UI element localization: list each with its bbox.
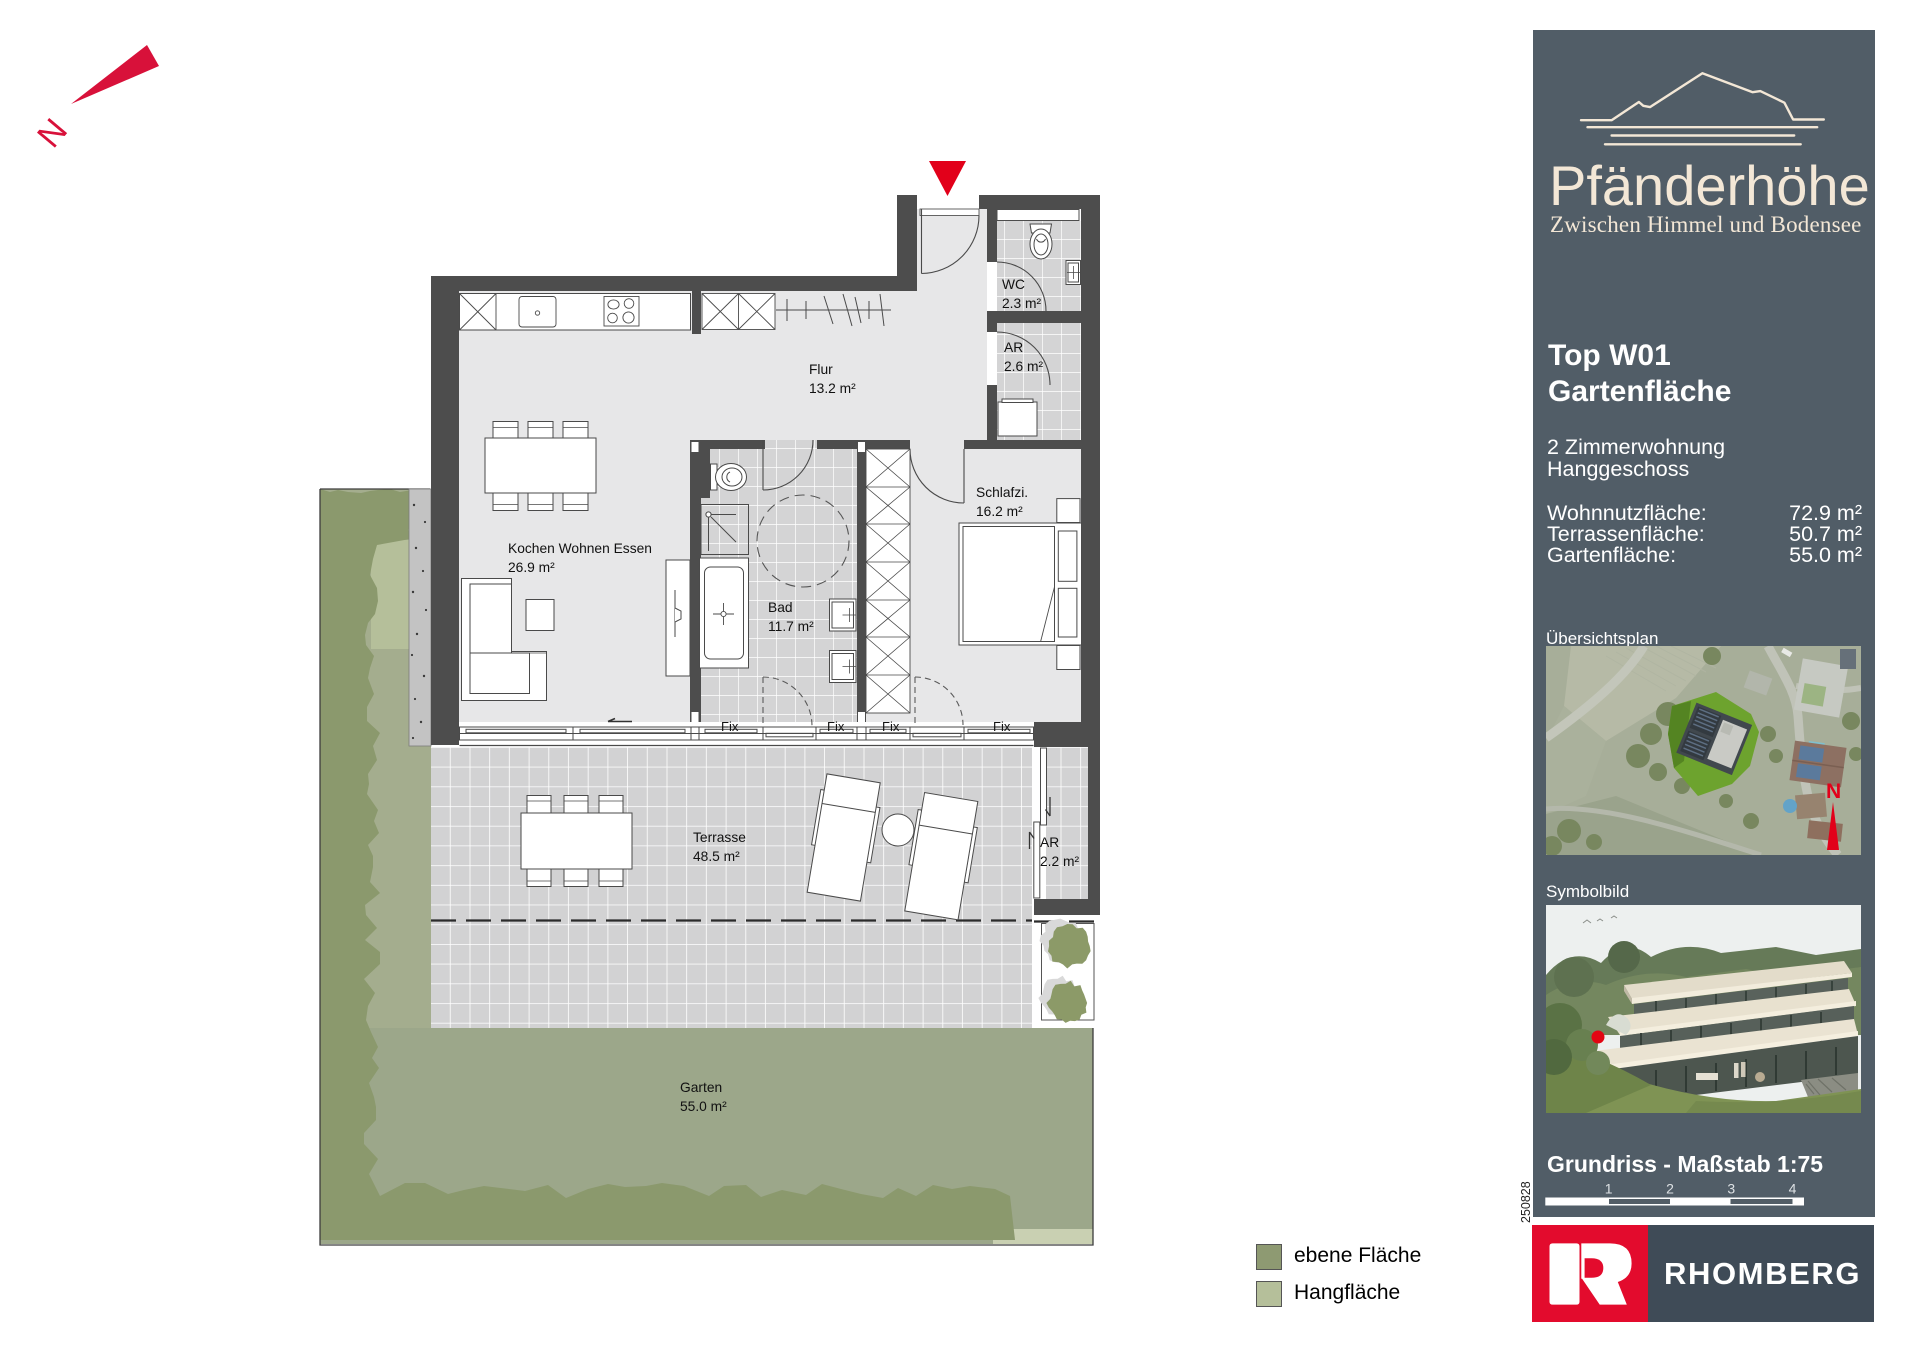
svg-text:AR: AR [1040, 835, 1059, 850]
svg-text:3: 3 [1727, 1181, 1735, 1197]
svg-text:1: 1 [1605, 1181, 1613, 1197]
svg-text:26.9 m²: 26.9 m² [508, 560, 555, 575]
svg-text:Fix: Fix [882, 719, 900, 734]
svg-text:2.3 m²: 2.3 m² [1002, 296, 1042, 311]
svg-text:48.5 m²: 48.5 m² [693, 849, 740, 864]
svg-text:2.2 m²: 2.2 m² [1040, 854, 1080, 869]
svg-text:Kochen Wohnen Essen: Kochen Wohnen Essen [508, 541, 652, 556]
svg-text:11.7 m²: 11.7 m² [768, 619, 814, 634]
svg-text:16.2 m²: 16.2 m² [976, 504, 1023, 519]
svg-text:N: N [1826, 780, 1841, 803]
svg-text:250828: 250828 [1519, 1181, 1533, 1223]
svg-text:Terrasse: Terrasse [693, 830, 746, 845]
svg-text:Flur: Flur [809, 362, 833, 377]
svg-text:N: N [30, 112, 75, 155]
svg-text:Schlafzi.: Schlafzi. [976, 485, 1028, 500]
svg-text:WC: WC [1002, 277, 1025, 292]
svg-text:Fix: Fix [993, 719, 1011, 734]
svg-text:Fix: Fix [827, 719, 845, 734]
svg-text:2: 2 [1666, 1181, 1674, 1197]
svg-text:Fix: Fix [721, 719, 739, 734]
svg-text:13.2 m²: 13.2 m² [809, 381, 856, 396]
svg-text:AR: AR [1004, 340, 1023, 355]
svg-text:55.0 m²: 55.0 m² [680, 1099, 727, 1114]
svg-text:2.6 m²: 2.6 m² [1004, 359, 1044, 374]
svg-text:Garten: Garten [680, 1080, 722, 1095]
svg-text:4: 4 [1789, 1181, 1797, 1197]
svg-text:Bad: Bad [768, 600, 793, 615]
